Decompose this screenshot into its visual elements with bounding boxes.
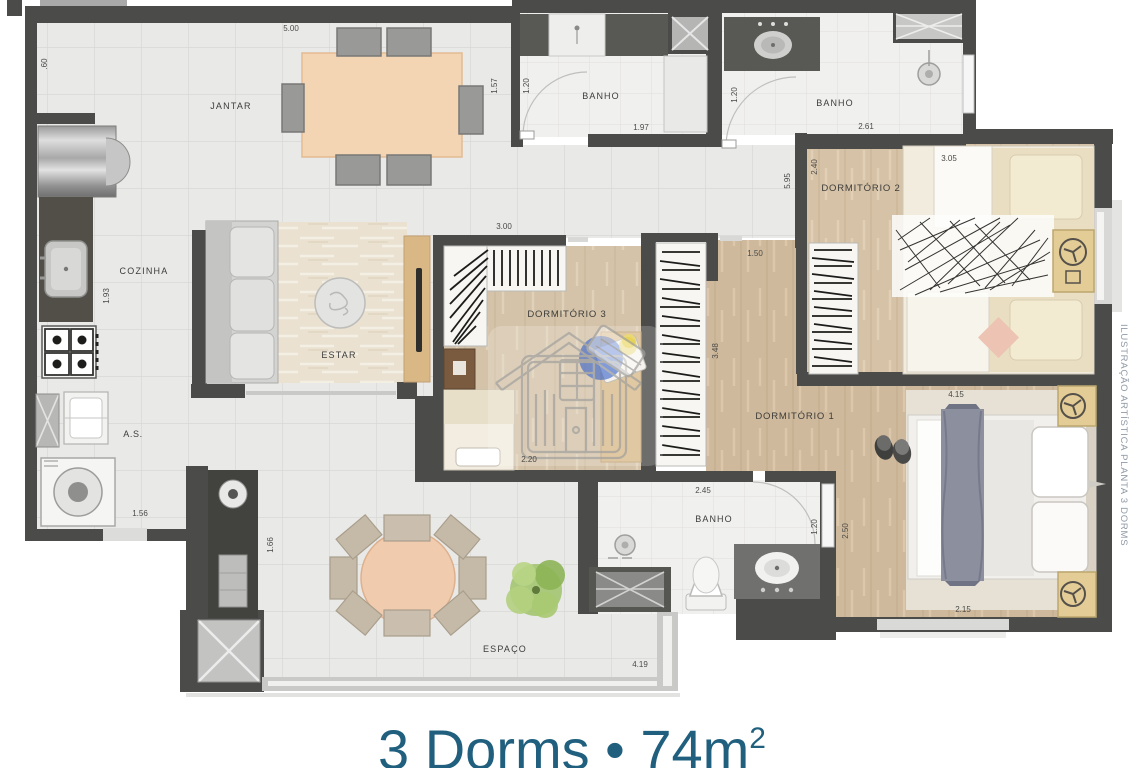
svg-text:.60: .60 [40, 58, 49, 70]
svg-text:1.20: 1.20 [522, 78, 531, 94]
svg-text:1.56: 1.56 [132, 509, 148, 518]
svg-text:4.19: 4.19 [632, 660, 648, 669]
svg-text:5.95: 5.95 [783, 173, 792, 189]
svg-text:2.40: 2.40 [810, 159, 819, 175]
svg-text:5.00: 5.00 [283, 24, 299, 33]
svg-text:BANHO: BANHO [582, 91, 620, 101]
svg-text:1.66: 1.66 [266, 537, 275, 553]
svg-text:BANHO: BANHO [695, 514, 733, 524]
svg-text:ESTAR: ESTAR [321, 350, 356, 360]
svg-text:1.97: 1.97 [633, 123, 649, 132]
svg-text:1.20: 1.20 [810, 519, 819, 535]
svg-text:ESPAÇO: ESPAÇO [483, 644, 527, 654]
svg-text:2.50: 2.50 [841, 523, 850, 539]
svg-text:3.05: 3.05 [941, 154, 957, 163]
svg-text:3 Dorms • 74m2: 3 Dorms • 74m2 [378, 718, 766, 768]
svg-text:2.20: 2.20 [521, 455, 537, 464]
svg-text:2.15: 2.15 [955, 605, 971, 614]
svg-text:BANHO: BANHO [816, 98, 854, 108]
svg-text:3.00: 3.00 [496, 222, 512, 231]
svg-text:2.45: 2.45 [695, 486, 711, 495]
svg-text:1.93: 1.93 [102, 288, 111, 304]
svg-text:2.61: 2.61 [858, 122, 874, 131]
svg-text:COZINHA: COZINHA [120, 266, 169, 276]
svg-text:1.20: 1.20 [730, 87, 739, 103]
svg-text:DORMITÓRIO 1: DORMITÓRIO 1 [755, 411, 834, 422]
svg-text:1.57: 1.57 [490, 78, 499, 94]
svg-text:1.50: 1.50 [747, 249, 763, 258]
svg-text:DORMITÓRIO 3: DORMITÓRIO 3 [527, 309, 606, 320]
svg-text:2.15: 2.15 [641, 263, 650, 279]
svg-text:JANTAR: JANTAR [210, 101, 252, 111]
svg-text:3.48: 3.48 [711, 343, 720, 359]
svg-text:4.15: 4.15 [948, 390, 964, 399]
svg-text:A.S.: A.S. [123, 429, 142, 439]
svg-text:ILUSTRAÇÃO ARTÍSTICA PLANTA 3: ILUSTRAÇÃO ARTÍSTICA PLANTA 3 DORMS [1118, 324, 1129, 546]
svg-text:DORMITÓRIO 2: DORMITÓRIO 2 [821, 183, 900, 194]
